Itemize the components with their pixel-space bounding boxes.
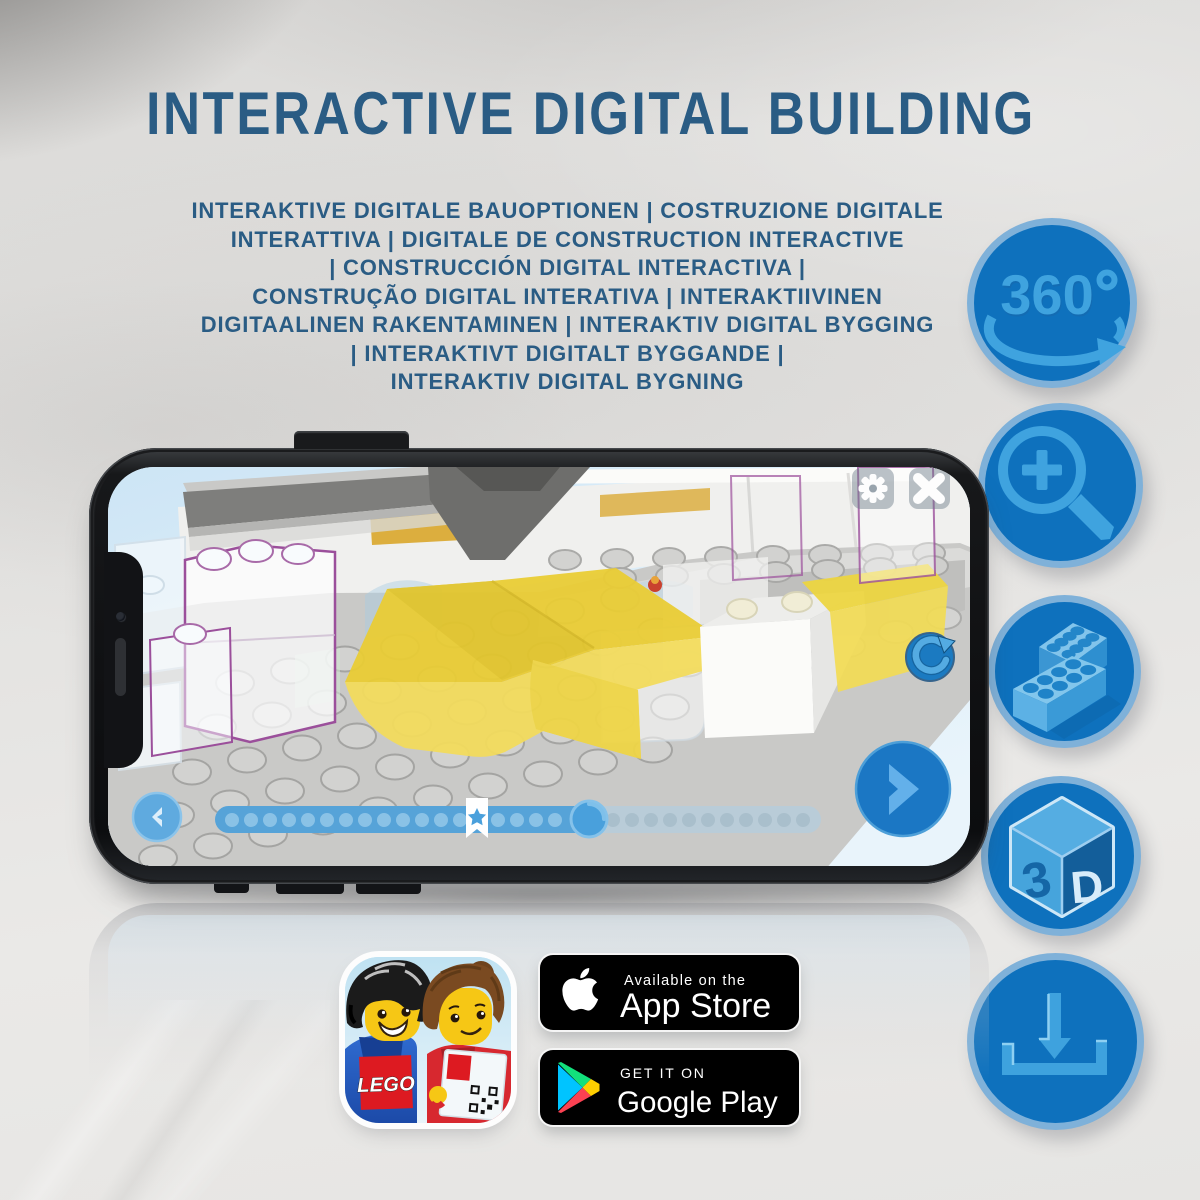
svg-text:GET IT ON: GET IT ON xyxy=(620,1065,706,1081)
svg-text:Google Play: Google Play xyxy=(617,1086,778,1119)
svg-text:App Store: App Store xyxy=(620,987,771,1025)
svg-text:LEGO: LEGO xyxy=(357,1073,416,1097)
svg-text:D: D xyxy=(1069,860,1106,914)
svg-text:360: 360 xyxy=(1000,263,1093,326)
